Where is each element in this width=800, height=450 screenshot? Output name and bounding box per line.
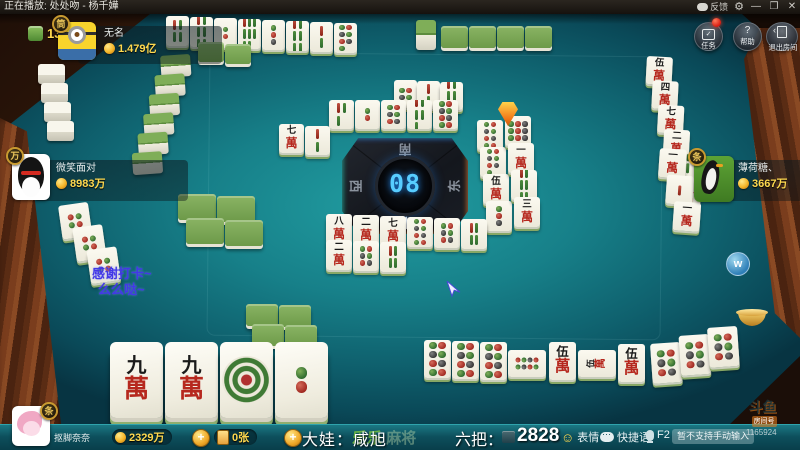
coin-icon bbox=[738, 178, 749, 189]
tasks-notification-dot bbox=[712, 18, 721, 27]
tile-t3 bbox=[262, 20, 285, 50]
question-mark-icon: ? bbox=[734, 25, 761, 37]
tile-s2 bbox=[310, 22, 333, 52]
chat-line-1: 感谢打卡~ bbox=[92, 266, 152, 282]
coin-icon bbox=[104, 43, 115, 54]
player-money-right: 3667万 bbox=[752, 175, 787, 191]
player-name-bottom: 抠脚奈奈 bbox=[54, 431, 90, 444]
chat-message: 感谢打卡~ 么么哒~ bbox=[92, 266, 152, 298]
tile-w1: 一萬 bbox=[508, 143, 534, 173]
tile-back bbox=[41, 83, 68, 103]
tile-s4 bbox=[380, 242, 406, 272]
tile-t8 bbox=[433, 100, 458, 129]
round-label: 六把： bbox=[455, 426, 503, 450]
mic-button[interactable]: F2 bbox=[646, 429, 670, 441]
tile-s6 bbox=[511, 170, 537, 200]
tile-t8 bbox=[424, 340, 451, 378]
suit-badge-right: 条 bbox=[688, 148, 706, 166]
tile-back bbox=[38, 64, 65, 84]
tile-t8 bbox=[480, 342, 507, 380]
suit-badge-bottom: 条 bbox=[40, 402, 58, 420]
help-button[interactable]: ? 帮助 bbox=[733, 22, 762, 51]
player-money-bottom: 2329万 bbox=[129, 429, 164, 445]
tile-back-icon bbox=[28, 26, 43, 41]
tile-back bbox=[44, 102, 71, 122]
tile-w5: 伍萬 bbox=[483, 174, 509, 204]
tile-back bbox=[225, 220, 263, 246]
tile-t8 bbox=[407, 217, 433, 247]
gold-bowl-button[interactable] bbox=[736, 304, 768, 328]
tile-t8 bbox=[452, 341, 479, 379]
tile-w9[interactable]: 九萬 bbox=[110, 342, 163, 418]
tile-t6 bbox=[353, 241, 379, 271]
quick-chat-button[interactable]: 快捷语 bbox=[600, 429, 650, 445]
coin-icon bbox=[115, 432, 126, 443]
tile-w1: 一萬 bbox=[672, 201, 701, 232]
card-icon bbox=[217, 430, 229, 445]
tile-back bbox=[279, 305, 311, 327]
tile-s4 bbox=[461, 219, 487, 249]
tile-t8 bbox=[477, 120, 503, 150]
exit-room-button[interactable]: 退出房间 bbox=[766, 22, 798, 51]
tile-s5 bbox=[407, 100, 432, 129]
player-name-top: 无名 bbox=[104, 28, 216, 40]
tile-t6 bbox=[434, 218, 460, 248]
tile-back bbox=[47, 121, 74, 141]
tiles-layer: 七萬伍萬一萬三萬伍萬四萬七萬二萬六萬一萬一萬八萬二萬七萬二萬九萬九萬伍萬伍萬伍萬 bbox=[0, 0, 800, 450]
room-number: 1165924 bbox=[746, 427, 777, 438]
tasks-clipboard-icon: ✓ bbox=[702, 29, 715, 40]
room-label: 房间号 bbox=[752, 416, 777, 427]
tile-t8 bbox=[508, 350, 546, 377]
douyu-logo: 斗鱼 bbox=[746, 402, 777, 413]
player-name-right: 薄荷糖、 bbox=[738, 163, 800, 175]
tile-w3: 三萬 bbox=[514, 197, 540, 227]
tile-back bbox=[497, 26, 524, 48]
bowl-rim-icon bbox=[736, 309, 768, 316]
tile-t6 bbox=[381, 100, 406, 129]
blue-w-button[interactable]: w bbox=[726, 252, 750, 276]
player-money-top: 1.479亿 bbox=[118, 40, 157, 56]
exit-door-icon bbox=[777, 26, 787, 38]
microphone-icon bbox=[646, 430, 654, 441]
add-money-button[interactable]: + bbox=[192, 429, 210, 447]
player-name-left: 微笑面对 bbox=[56, 163, 182, 175]
suit-badge-left: 万 bbox=[6, 147, 24, 165]
tile-t7 bbox=[334, 23, 357, 53]
tile-t6 bbox=[707, 326, 740, 368]
mouse-cursor bbox=[446, 281, 461, 304]
tile-t7 bbox=[480, 147, 506, 177]
dealer-label: 大娃：咸旭 bbox=[302, 426, 387, 450]
tile-back bbox=[525, 26, 552, 48]
suit-badge-top: 筒 bbox=[52, 15, 70, 33]
tile-w9[interactable]: 九萬 bbox=[165, 342, 218, 418]
tile-t6 bbox=[650, 342, 683, 384]
tile-s3 bbox=[329, 100, 354, 129]
chat-input[interactable]: 暂不支持手动输入 bbox=[672, 429, 754, 444]
player-panel-top: 无名 1.479亿 bbox=[78, 26, 222, 64]
round-value: 2828 bbox=[517, 425, 559, 447]
tile-t2 bbox=[355, 100, 380, 129]
tile-back bbox=[186, 218, 224, 244]
tile-back bbox=[225, 44, 251, 64]
player-panel-left: 微笑面对 8983万 bbox=[34, 160, 188, 201]
tile-back bbox=[416, 20, 436, 50]
player-money-left: 8983万 bbox=[70, 175, 105, 191]
tile-w5: 伍萬 bbox=[618, 344, 645, 382]
smiley-icon: ☺ bbox=[561, 431, 574, 444]
player-cards-bottom: 0张 bbox=[232, 429, 249, 445]
tile-t3 bbox=[486, 201, 512, 231]
tile-w5: 伍萬 bbox=[578, 350, 616, 377]
coin-icon bbox=[56, 178, 67, 189]
tile-t6 bbox=[679, 334, 712, 376]
chat-line-2: 么么哒~ bbox=[98, 282, 152, 298]
tile-s2 bbox=[305, 126, 330, 155]
tile-back bbox=[246, 304, 278, 326]
tile-s6 bbox=[286, 21, 309, 51]
mahjong-game-window: 南 北 西 东 08 七萬伍萬一萬三萬伍萬四萬七萬二萬六萬一萬一萬八萬二萬七萬二… bbox=[0, 0, 800, 450]
tile-back bbox=[469, 26, 496, 48]
tile-back bbox=[441, 26, 468, 48]
round-stack-icon bbox=[502, 431, 515, 443]
douyu-watermark: 斗鱼 房间号 1165924 bbox=[746, 402, 777, 438]
tile-w7: 七萬 bbox=[279, 124, 304, 153]
money-pill: 2329万 bbox=[112, 429, 172, 445]
tile-t2[interactable] bbox=[275, 342, 328, 418]
bottom-bar: 乐乐 麻将 抠脚奈奈 2329万 + 0张 + 大娃：咸旭 六把： 2828 ☺… bbox=[0, 424, 800, 450]
add-cards-button[interactable]: + bbox=[284, 429, 302, 447]
tile-t1[interactable] bbox=[220, 342, 273, 418]
emoji-button[interactable]: ☺ 表情 bbox=[561, 429, 599, 445]
cards-pill: 0张 bbox=[214, 429, 257, 445]
tile-w2: 二萬 bbox=[326, 240, 352, 270]
tile-w5: 伍萬 bbox=[549, 342, 576, 380]
chat-bubble-icon bbox=[600, 432, 614, 442]
